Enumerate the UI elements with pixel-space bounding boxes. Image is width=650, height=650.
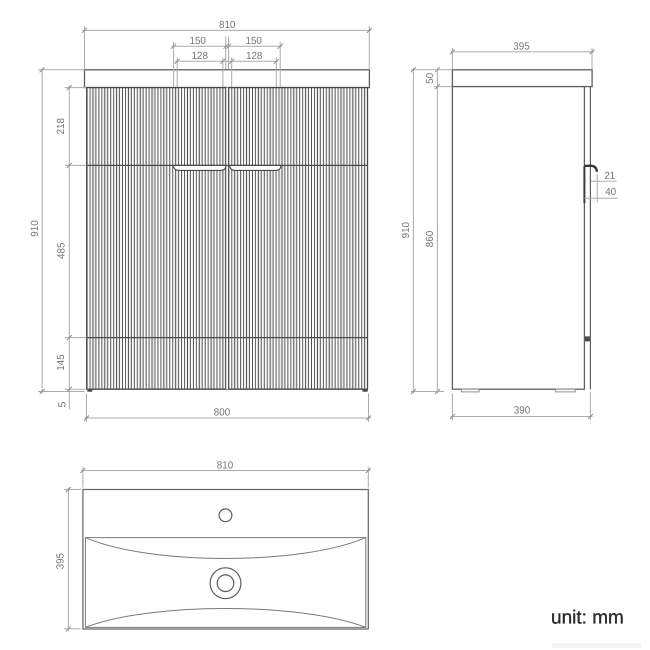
svg-text:485: 485: [56, 242, 67, 259]
svg-text:800: 800: [214, 407, 231, 418]
svg-text:128: 128: [192, 51, 209, 62]
svg-text:910: 910: [401, 222, 412, 239]
svg-text:50: 50: [425, 73, 436, 84]
svg-text:860: 860: [425, 231, 436, 248]
svg-text:218: 218: [56, 118, 67, 135]
svg-text:390: 390: [514, 406, 531, 417]
svg-text:150: 150: [190, 36, 207, 47]
svg-text:910: 910: [30, 220, 41, 237]
svg-text:40: 40: [605, 187, 616, 198]
svg-text:21: 21: [604, 171, 615, 182]
svg-text:395: 395: [513, 42, 530, 53]
svg-text:unit: mm: unit: mm: [551, 608, 624, 629]
svg-text:5: 5: [58, 401, 69, 407]
svg-text:150: 150: [246, 36, 263, 47]
svg-text:145: 145: [56, 354, 67, 371]
svg-text:395: 395: [56, 553, 67, 570]
svg-text:810: 810: [217, 460, 234, 471]
svg-text:810: 810: [219, 20, 236, 31]
svg-text:128: 128: [246, 51, 263, 62]
